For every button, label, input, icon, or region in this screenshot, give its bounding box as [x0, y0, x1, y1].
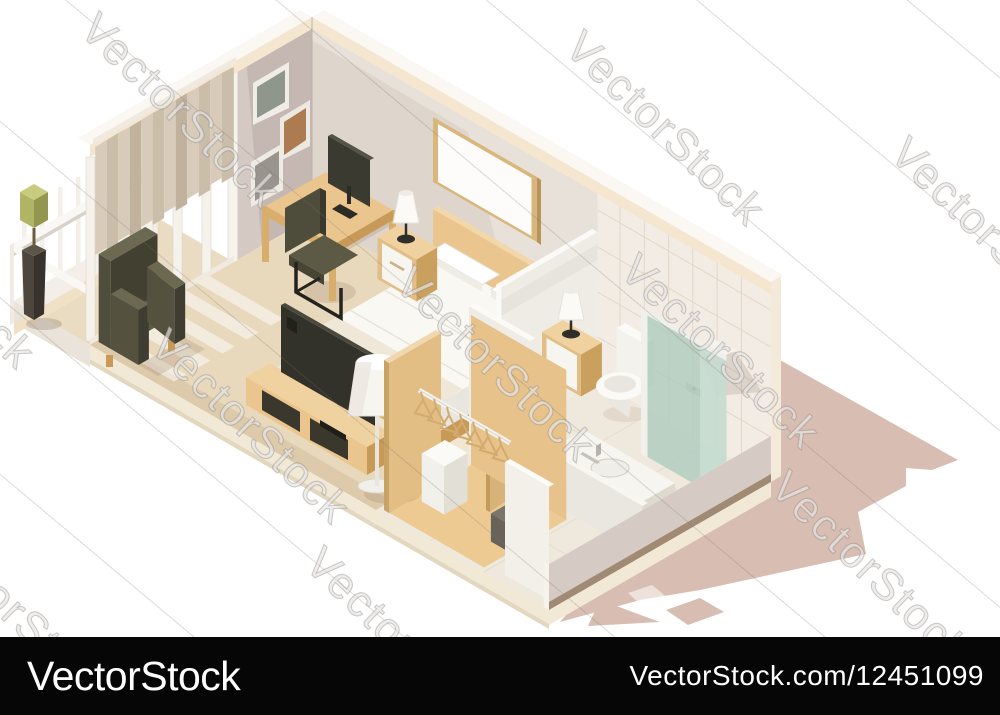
watermark-bar: VectorStock VectorStock.com/12451099 — [0, 637, 1000, 715]
isometric-room-illustration — [0, 0, 1000, 715]
vectorstock-logo: VectorStock — [0, 653, 240, 700]
mini-fridge — [422, 440, 468, 515]
stock-image-page: VectorStock VectorStock VectorStock Vect… — [0, 0, 1000, 715]
image-url: VectorStock.com/12451099 — [630, 660, 1000, 692]
